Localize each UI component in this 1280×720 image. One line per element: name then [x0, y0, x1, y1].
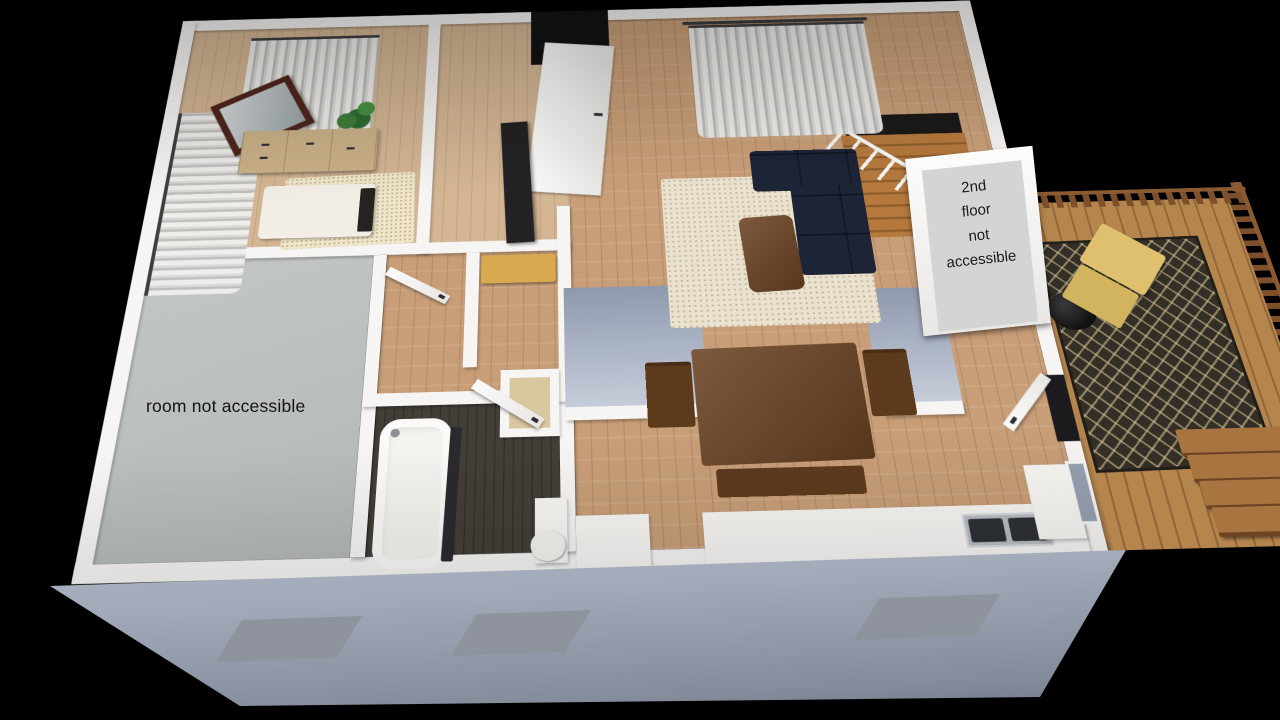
bed — [257, 183, 376, 239]
deck-post — [1230, 182, 1244, 191]
kitchen-island — [576, 514, 652, 569]
dining-chair-left — [645, 362, 696, 428]
front-window-opening — [854, 594, 1000, 640]
front-window-opening — [216, 616, 362, 662]
second-floor-label: 2nd floor not accessible — [922, 160, 1038, 332]
dining-bench — [716, 465, 868, 497]
bathtub — [371, 418, 453, 570]
floor-plan-render: 2nd floor not accessible room not access… — [0, 0, 1280, 720]
sofa-seat-section — [790, 184, 877, 275]
entry-bench — [481, 254, 556, 284]
living-curtain — [688, 21, 884, 138]
dining-table — [691, 342, 876, 466]
potted-plant — [335, 101, 380, 136]
room-not-accessible-label: room not accessible — [146, 396, 305, 417]
front-window-opening — [451, 610, 591, 656]
